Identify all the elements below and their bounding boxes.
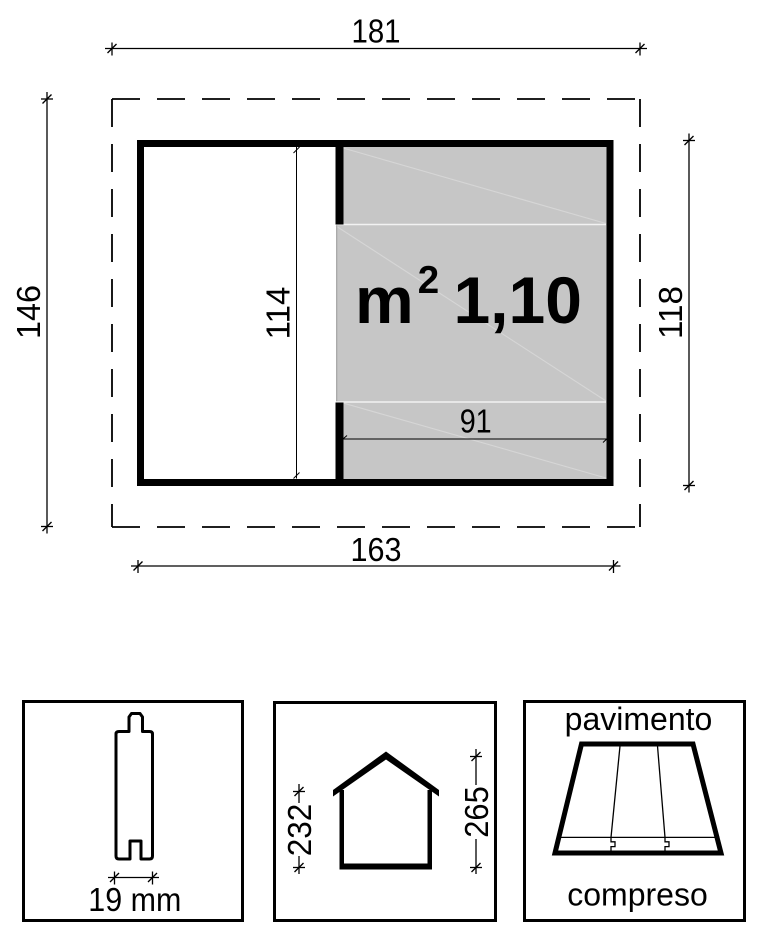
svg-text:pavimento: pavimento xyxy=(565,701,713,737)
svg-text:163: 163 xyxy=(351,531,402,568)
svg-text:91: 91 xyxy=(460,403,492,440)
svg-text:compreso: compreso xyxy=(567,877,708,913)
svg-text:232: 232 xyxy=(281,804,318,857)
svg-text:146: 146 xyxy=(10,285,47,339)
svg-text:m2 1,10: m2 1,10 xyxy=(355,259,582,337)
svg-text:181: 181 xyxy=(352,13,401,50)
svg-text:19 mm: 19 mm xyxy=(88,881,181,918)
svg-text:114: 114 xyxy=(260,287,297,340)
svg-text:118: 118 xyxy=(652,286,689,339)
svg-text:265: 265 xyxy=(458,786,495,838)
